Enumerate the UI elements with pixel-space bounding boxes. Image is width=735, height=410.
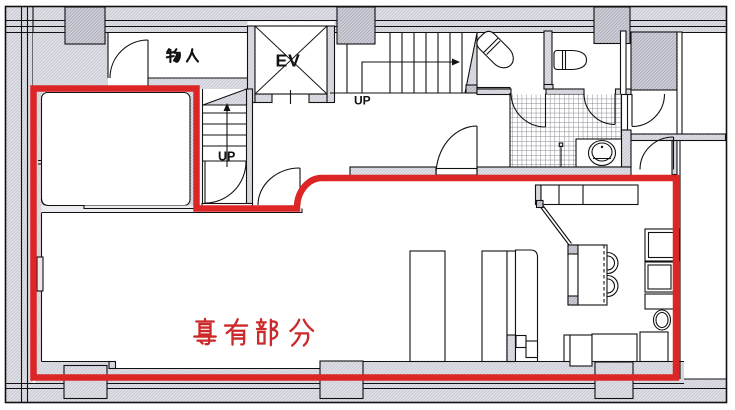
svg-text:UP: UP	[218, 150, 235, 164]
svg-text:EV: EV	[276, 51, 301, 71]
svg-text:UP: UP	[354, 94, 371, 108]
